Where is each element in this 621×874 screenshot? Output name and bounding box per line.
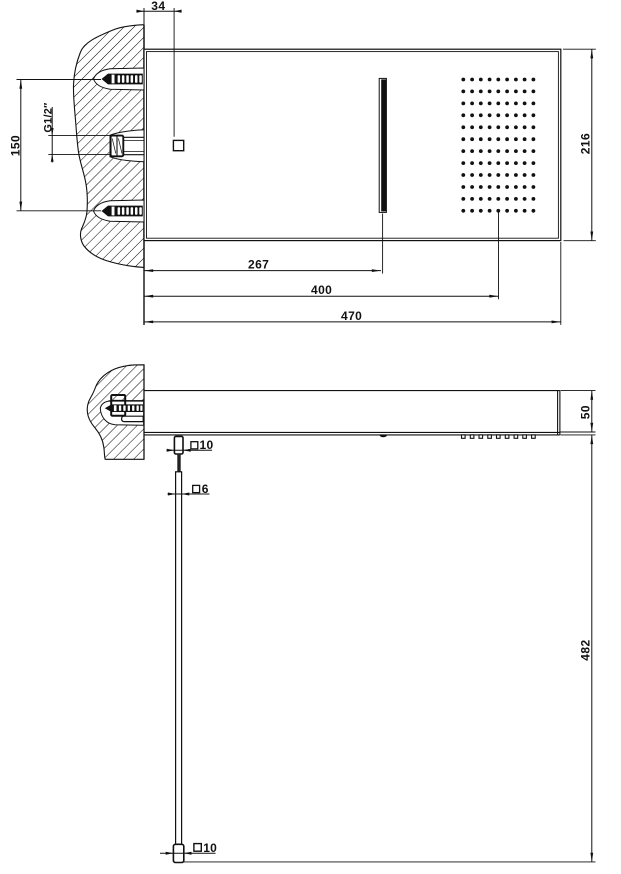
svg-text:10: 10	[200, 438, 214, 452]
svg-text:400: 400	[311, 283, 332, 297]
svg-text:10: 10	[203, 841, 217, 855]
svg-text:34: 34	[151, 0, 165, 13]
svg-text:216: 216	[579, 133, 593, 154]
svg-text:G1/2″: G1/2″	[43, 102, 55, 133]
svg-text:470: 470	[341, 309, 362, 323]
svg-text:150: 150	[9, 135, 23, 156]
svg-text:50: 50	[579, 405, 593, 419]
svg-text:482: 482	[579, 639, 593, 660]
svg-text:6: 6	[202, 482, 209, 496]
svg-text:267: 267	[248, 258, 269, 272]
